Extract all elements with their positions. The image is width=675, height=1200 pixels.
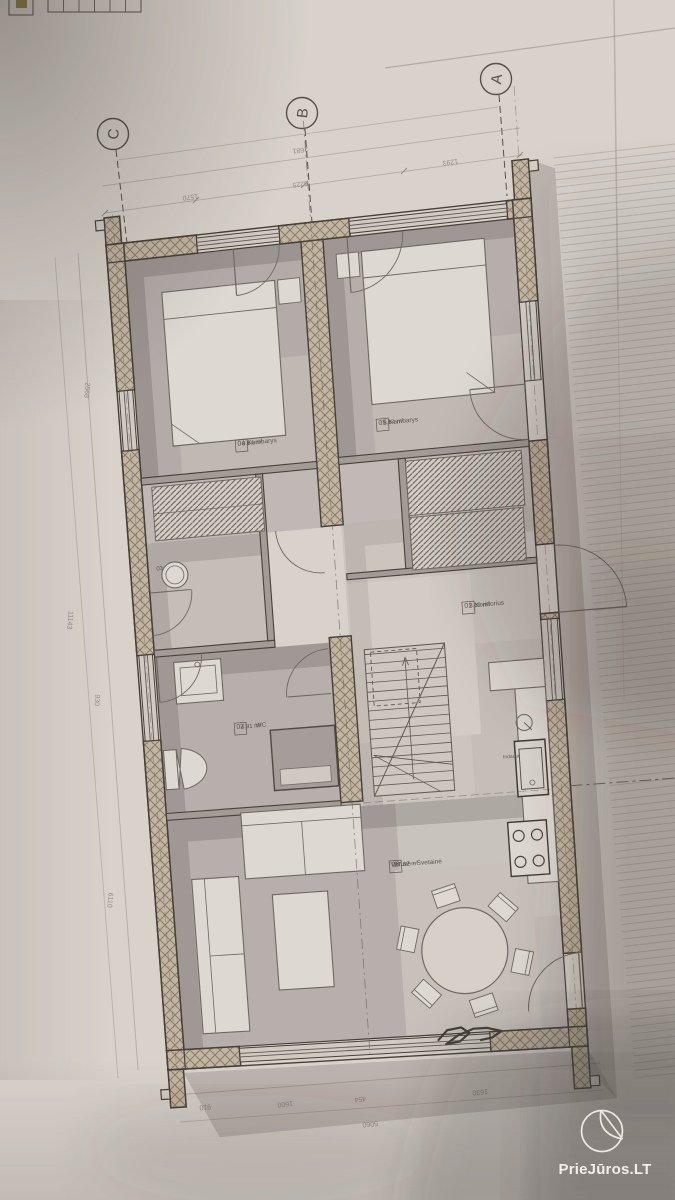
svg-text:A: A bbox=[488, 73, 506, 85]
svg-text:03: 03 bbox=[156, 566, 164, 573]
svg-text:Indauja: Indauja bbox=[503, 753, 520, 760]
svg-text:PrieJūros.LT: PrieJūros.LT bbox=[559, 1161, 652, 1178]
svg-text:WC: WC bbox=[255, 722, 267, 730]
